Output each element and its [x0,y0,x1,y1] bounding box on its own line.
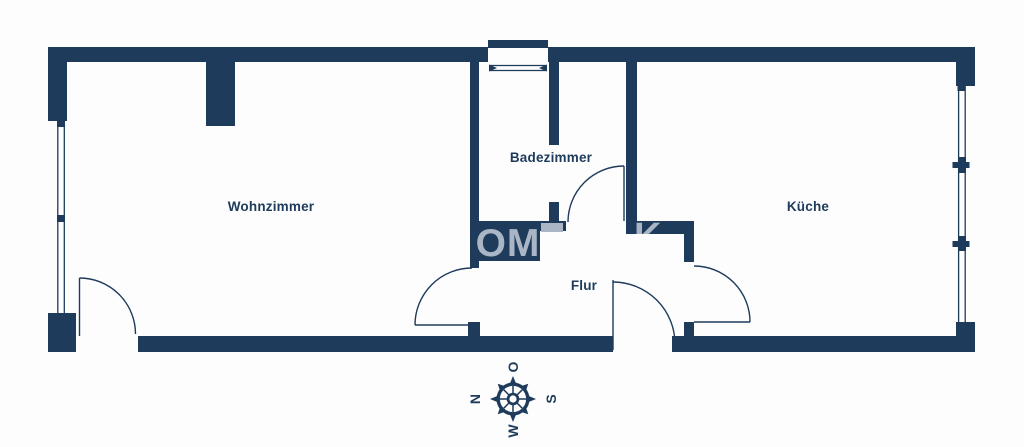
wall-bad-kueche [626,62,637,226]
door-arc-kueche [694,266,750,322]
room-label-flur: Flur [571,278,598,293]
floor-plan-drawing: OM K Wohnzimmer Badezimmer Küche Flur [0,0,1024,447]
room-label-kueche: Küche [787,199,830,214]
entrance-threshold [489,65,547,72]
room-label-wohnzimmer: Wohnzimmer [228,199,315,214]
wohnzimmer-door-jamb [468,322,480,337]
wall-left-upper [48,47,67,121]
watermark-fragment-bar [541,223,563,232]
wall-bottom-left [138,336,613,352]
compass-letter-s: S [543,394,559,403]
compass-rose: N O S W [467,361,559,437]
room-label-badezimmer: Badezimmer [510,150,593,165]
wall-bad-partition-stub [549,202,559,226]
wall-top-left [48,47,488,62]
wall-flur-kueche-v [684,234,694,262]
kueche-door-jamb [684,322,694,337]
door-arc-wohnzimmer-flur [415,268,472,325]
wall-bottom-right [672,336,975,352]
wall-right-top-corner [956,47,975,86]
wall-bad-partition [549,62,559,145]
wall-left-corner-block [48,313,76,352]
right-window-mullion1-h [953,162,970,168]
door-arc-wohnzimmer-ext [80,278,136,334]
entrance-lintel [488,40,548,48]
doors [80,166,751,350]
door-arc-badezimmer [568,166,624,222]
watermark-fragment-right: K [634,216,662,258]
wall-top-right [548,47,974,62]
pillar-wohnzimmer [206,62,235,126]
watermark: OM K [476,216,663,265]
compass-letter-o: O [505,361,521,372]
compass-letter-w: W [505,424,521,438]
right-window-mullion2-h [953,241,970,247]
door-arc-flur-ext [613,282,675,344]
walls [48,40,975,352]
floor-plan-page: OM K Wohnzimmer Badezimmer Küche Flur [0,0,1024,447]
watermark-fragment-left: OM [476,222,541,265]
compass-hub-center [509,395,516,402]
compass-letter-n: N [467,394,483,404]
wall-right-bottom-corner [956,322,975,352]
